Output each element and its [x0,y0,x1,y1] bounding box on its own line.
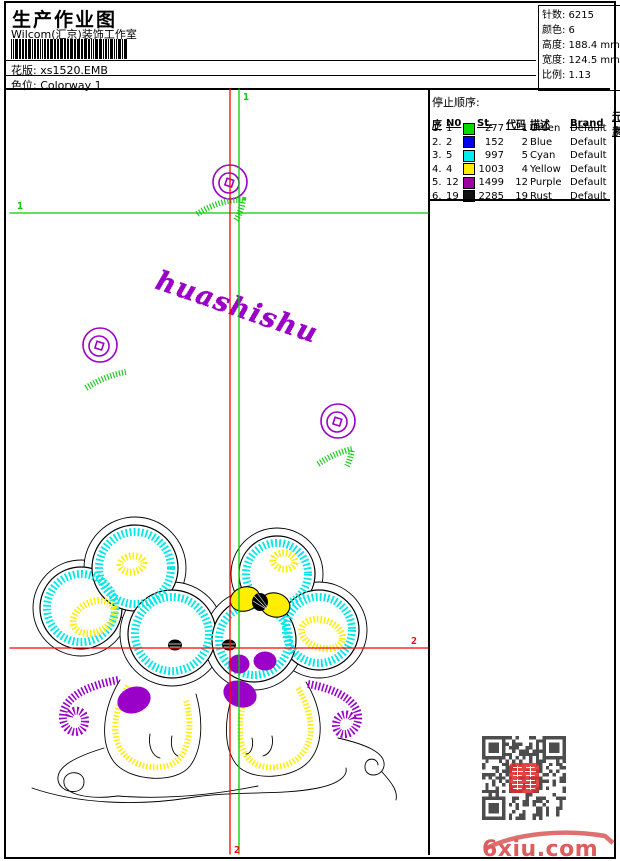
guide-label-left: 1 [17,201,23,212]
color-swatch [463,163,475,175]
color-swatch [463,177,475,189]
row-n0: 4 [446,164,461,175]
row-stitches: 997 [477,150,506,161]
table-divider [430,199,610,201]
row-n0: 5 [446,150,461,161]
color-swatch [463,150,475,162]
row-stitches: 1499 [477,177,506,188]
stat-line: 宽度: 124.5 mm [542,53,618,68]
design-canvas: huashishu [8,88,430,855]
color-swatch [463,136,475,148]
row-stitches: 152 [477,137,506,148]
stop-sequence-row: 1.12771 GreenDefault [432,122,614,136]
divider [6,75,536,76]
stop-sequence-row: 2.21522 BlueDefault [432,136,614,150]
row-brand: Default [570,164,612,175]
row-description: Yellow [530,164,570,175]
leaf-stitch-right [318,449,352,466]
row-n0: 12 [446,177,461,188]
guide-label-right: 2 [411,636,417,647]
row-code: 1 [506,123,530,134]
rose-flower-right [321,404,355,438]
row-code: 5 [506,150,530,161]
swirl-outline [32,738,396,803]
stop-sequence-row: 4.410034 YellowDefault [432,163,614,177]
row-seq: 4. [432,164,446,175]
script-lettering: huashishu [152,265,323,350]
row-description: Purple [530,177,570,188]
row-code: 12 [506,177,530,188]
row-description: Cyan [530,150,570,161]
row-brand: Default [570,177,612,188]
row-seq: 2. [432,137,446,148]
divider [6,60,536,61]
rose-flower-left [83,328,117,362]
leaf-stitch-left [86,372,126,388]
stop-sequence-row: 3.59975 CyanDefault [432,149,614,163]
stat-line: 比例: 1.13 [542,68,618,83]
stat-line: 颜色: 6 [542,23,618,38]
guide-label-bottom: 2 [234,845,240,855]
barcode [11,39,135,59]
stop-sequence-table: 1.12771 GreenDefault2.21522 BlueDefault3… [432,122,614,203]
guide-label-top: 1 [243,92,249,103]
row-code: 2 [506,137,530,148]
row-n0: 2 [446,137,461,148]
row-brand: Default [570,137,612,148]
row-description: Green [530,123,570,134]
leaf-stitch-top [197,200,243,220]
row-brand: Default [570,150,612,161]
row-code: 4 [506,164,530,175]
color-swatch [463,123,475,135]
stat-line: 高度: 188.4 mm [542,38,618,53]
watermark-text: 6xiu.com [482,837,598,861]
row-stitches: 1003 [477,164,506,175]
row-seq: 1. [432,123,446,134]
row-seq: 3. [432,150,446,161]
row-brand: Default [570,123,612,134]
row-seq: 5. [432,177,446,188]
design-stats-box: 针数: 6215颜色: 6高度: 188.4 mm宽度: 124.5 mm比例:… [538,5,620,91]
stop-sequence-row: 5.12149912 PurpleDefault [432,176,614,190]
qr-center-seal [509,763,539,793]
row-n0: 1 [446,123,461,134]
watermark: 6xiu.com [479,825,620,861]
worksheet-page: 生产作业图 Wilcom(汇京)装饰工作室 花版: xs1520.EMB 色位:… [4,1,616,859]
row-stitches: 277 [477,123,506,134]
mice-design [32,517,396,803]
stat-line: 针数: 6215 [542,8,618,23]
row-description: Blue [530,137,570,148]
